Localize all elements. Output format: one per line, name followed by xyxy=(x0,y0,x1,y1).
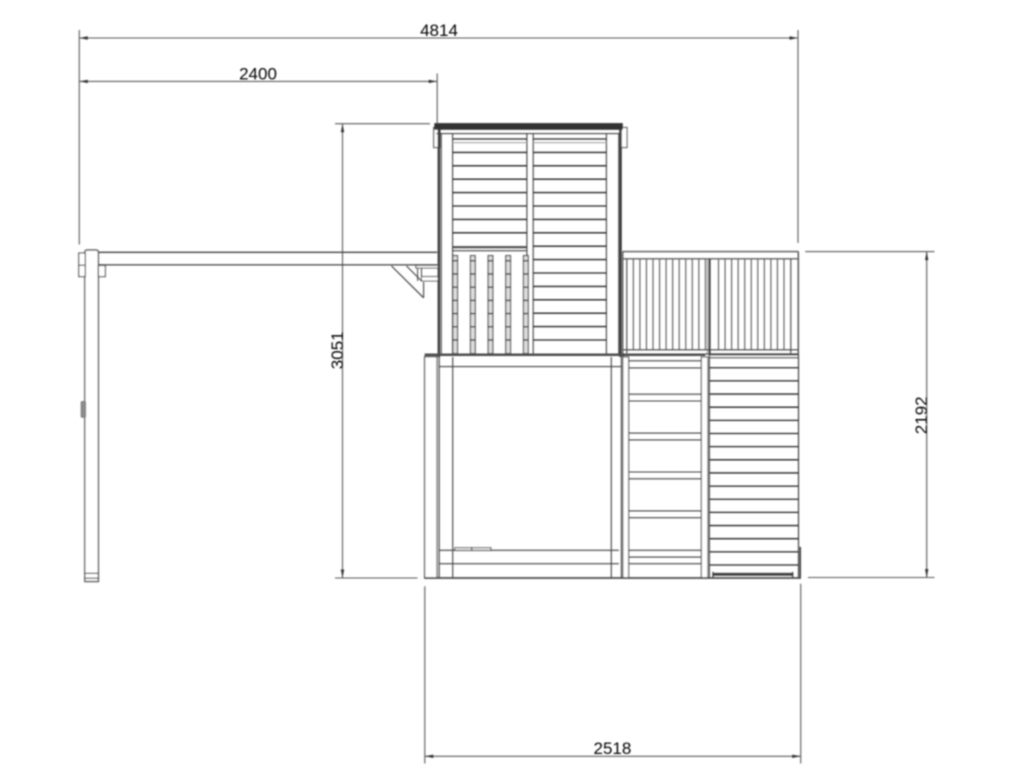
svg-text:4814: 4814 xyxy=(420,21,458,40)
svg-text:3051: 3051 xyxy=(328,331,347,369)
svg-text:2400: 2400 xyxy=(239,65,277,84)
svg-text:2192: 2192 xyxy=(912,396,931,434)
svg-text:2518: 2518 xyxy=(593,739,631,758)
